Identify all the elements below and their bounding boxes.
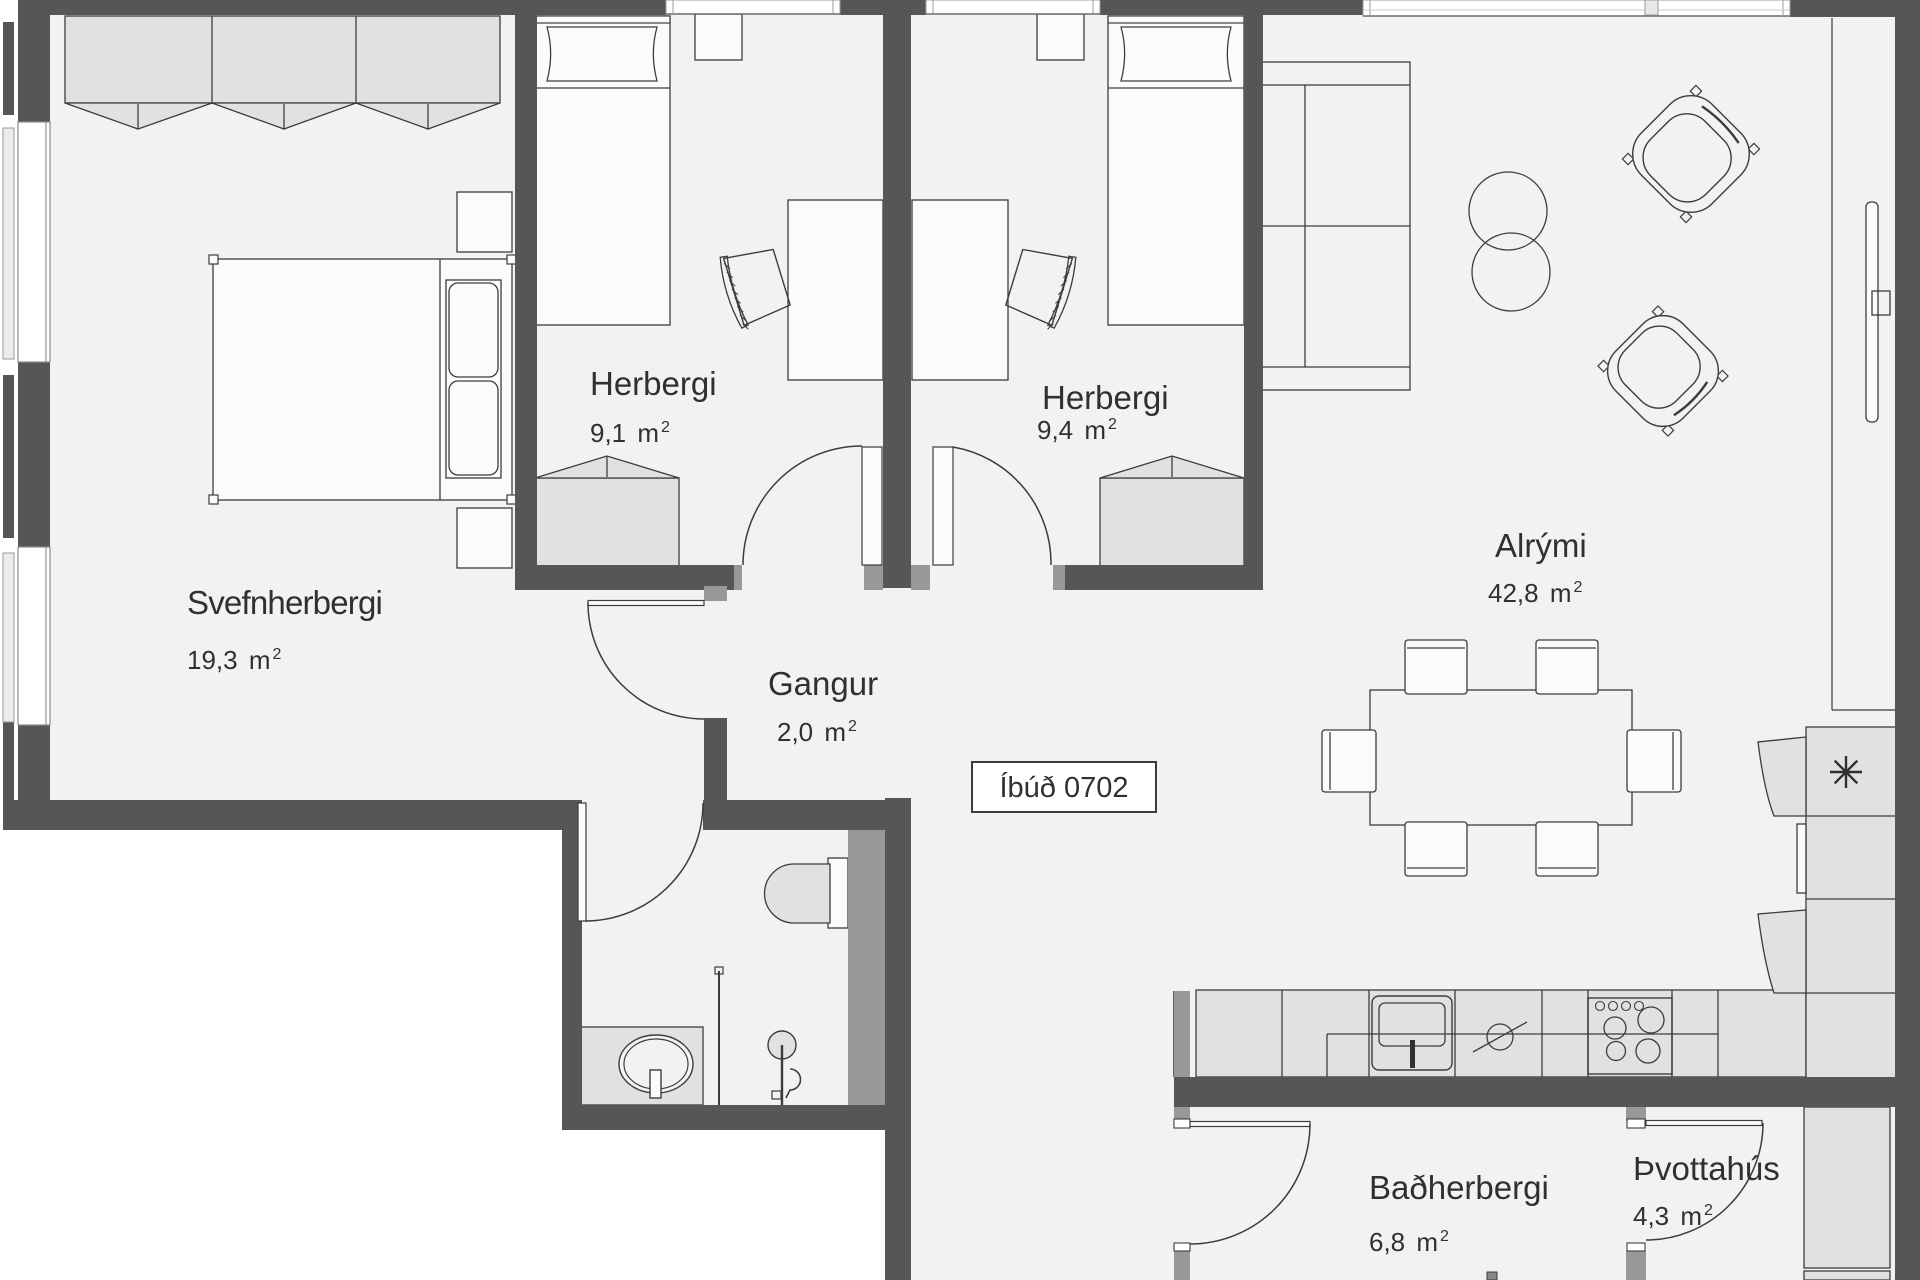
- svg-text:2,0 m2: 2,0 m2: [777, 717, 857, 747]
- svg-text:Svefnherbergi: Svefnherbergi: [187, 584, 382, 621]
- svg-text:9,4 m2: 9,4 m2: [1037, 415, 1117, 445]
- svg-text:Alrými: Alrými: [1495, 527, 1587, 564]
- svg-text:6,8 m2: 6,8 m2: [1369, 1227, 1449, 1257]
- svg-text:4,3 m2: 4,3 m2: [1633, 1201, 1713, 1231]
- svg-text:Baðherbergi: Baðherbergi: [1369, 1169, 1549, 1206]
- svg-text:19,3 m2: 19,3 m2: [187, 645, 282, 675]
- svg-text:9,1 m2: 9,1 m2: [590, 418, 670, 448]
- svg-text:Gangur: Gangur: [768, 665, 878, 702]
- svg-text:Herbergi: Herbergi: [590, 365, 717, 402]
- svg-text:42,8 m2: 42,8 m2: [1488, 578, 1583, 608]
- svg-text:Herbergi: Herbergi: [1042, 379, 1169, 416]
- svg-text:Íbúð 0702: Íbúð 0702: [999, 771, 1128, 804]
- svg-text:Þvottahús: Þvottahús: [1633, 1150, 1780, 1187]
